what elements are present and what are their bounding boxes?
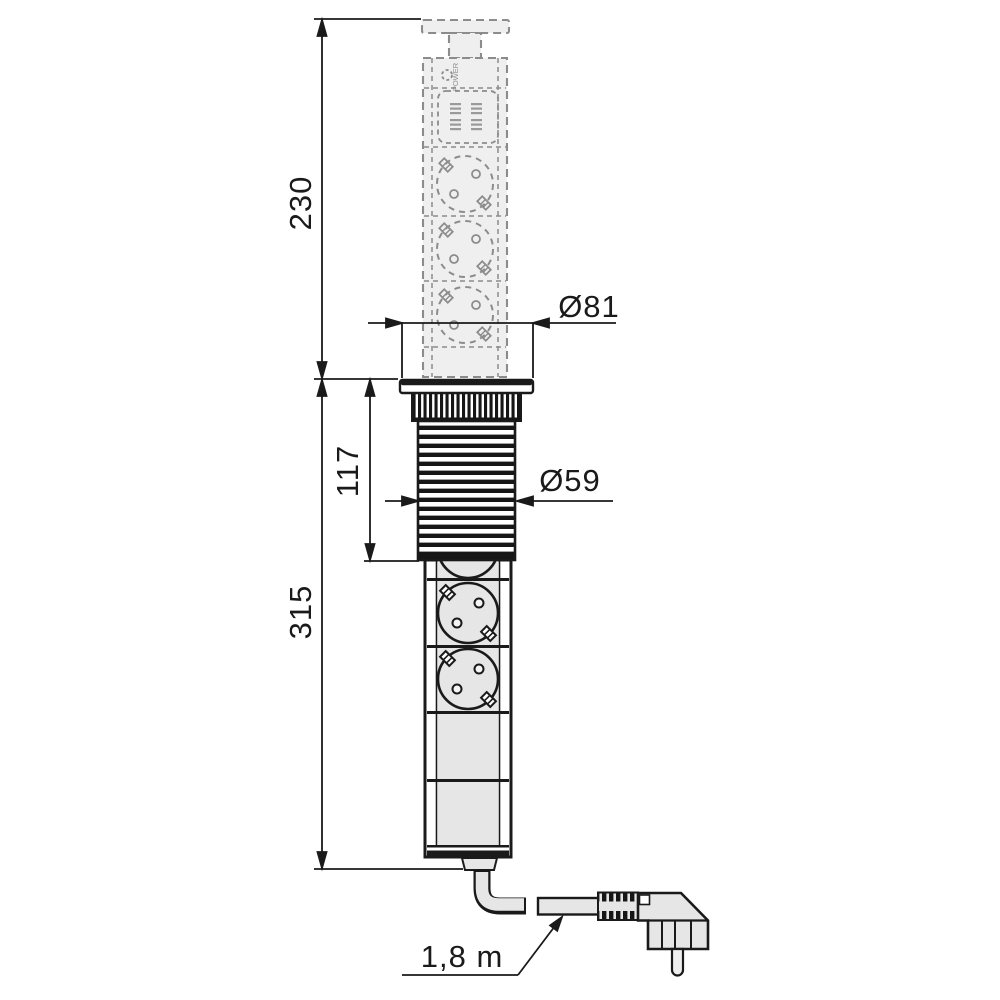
panel-divider: [427, 711, 509, 714]
drawing-canvas: POWER: [0, 0, 1000, 1000]
dim-label-d81: Ø81: [558, 289, 620, 324]
dim-label-d59: Ø59: [539, 463, 601, 498]
dim-label-cable-length: 1,8 m: [421, 939, 504, 974]
socket-column-body: [425, 518, 511, 857]
blank-panel: [438, 782, 498, 845]
panel-divider: [427, 779, 509, 782]
plug-pin: [672, 949, 683, 976]
bottom-cap-line: [427, 845, 509, 848]
bottom-cap-band: [427, 851, 509, 857]
technical-drawing: POWER: [0, 0, 1000, 1000]
mains-plug-icon: [638, 893, 708, 976]
dim-label-117: 117: [330, 445, 365, 497]
dim-label-230: 230: [283, 176, 318, 231]
power-button-label: POWER: [451, 62, 460, 91]
knurled-collar: [412, 393, 521, 421]
corrugated-tube: [418, 421, 515, 561]
cable-segment: [538, 898, 599, 915]
dimension-230: [318, 20, 327, 378]
handle-stem: [449, 33, 481, 58]
dimension-315: [318, 380, 327, 868]
panel-divider: [427, 645, 509, 648]
ghost-column-body: [423, 58, 507, 377]
plug-strain-relief: [598, 893, 638, 921]
table-flange: [400, 380, 533, 393]
dim-label-315: 315: [283, 585, 318, 640]
blank-panel: [438, 714, 498, 779]
socket-icon: [438, 649, 498, 709]
socket-icon: [438, 583, 498, 643]
pull-handle-icon: [422, 20, 509, 33]
cable-stub: [462, 858, 497, 870]
dimension-117: [366, 380, 375, 560]
